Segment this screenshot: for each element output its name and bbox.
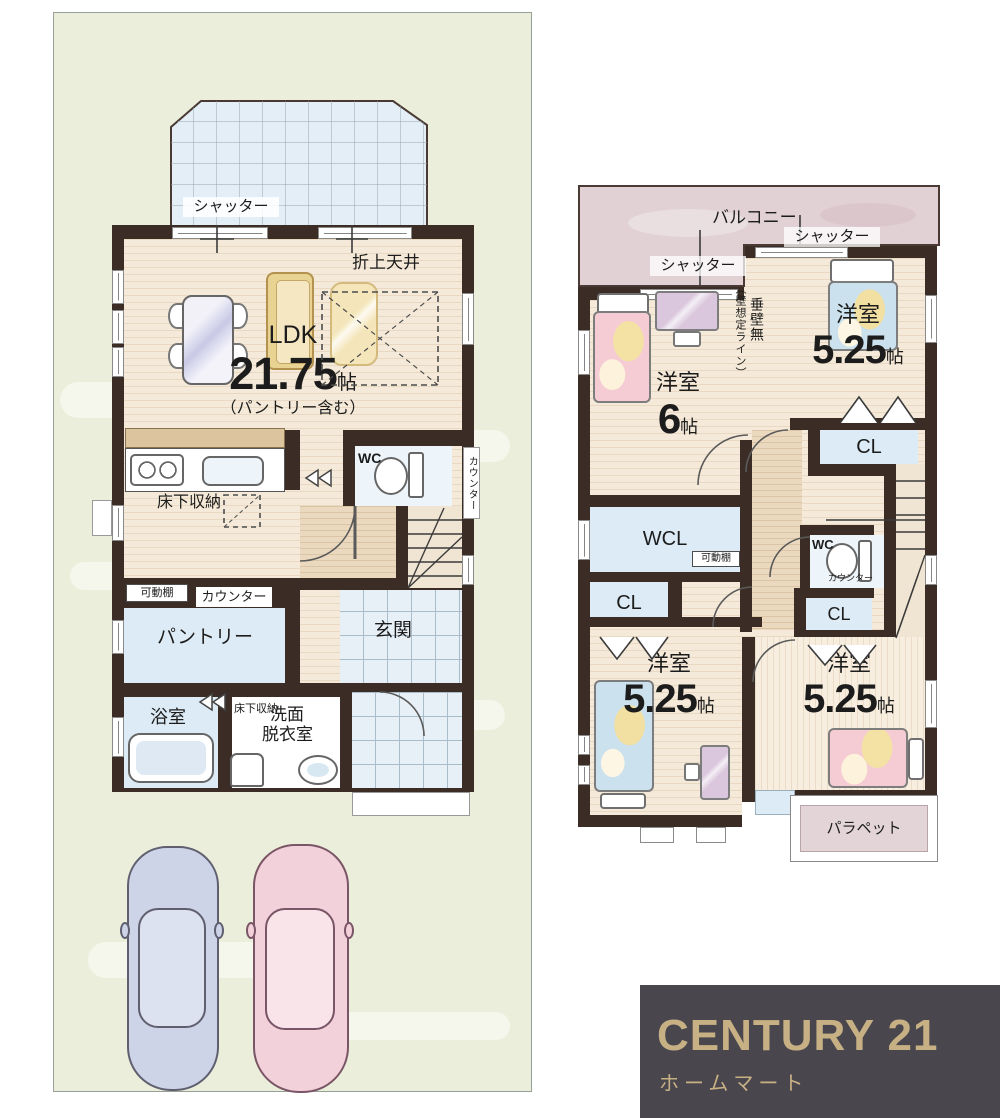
wall-note-paren: （壁想定ライン） bbox=[731, 283, 746, 443]
shutter-window bbox=[172, 227, 268, 239]
window bbox=[925, 680, 937, 728]
room-tr-label: 洋室 5.25 帖 bbox=[793, 300, 923, 376]
room6-label: 洋室 6 帖 bbox=[628, 357, 728, 457]
room-tr-size: 5.25 bbox=[812, 327, 886, 373]
door-tab bbox=[640, 827, 674, 843]
car-2 bbox=[253, 844, 349, 1093]
wall bbox=[285, 430, 300, 490]
car-1-mirror bbox=[120, 922, 130, 939]
coffered-ceiling-label: 折上天井 bbox=[352, 253, 420, 273]
desk-room6 bbox=[655, 291, 719, 331]
window bbox=[112, 310, 124, 344]
window bbox=[462, 555, 474, 585]
counter-label-1f: カウンター bbox=[196, 587, 272, 607]
counter-small-label: カウンター bbox=[828, 573, 873, 583]
underfloor-storage-label: 床下収納 bbox=[157, 493, 193, 513]
window bbox=[578, 520, 590, 560]
balcony-label: バルコニー bbox=[712, 208, 797, 228]
wc-label-2f: WC bbox=[812, 538, 826, 551]
bed-headboard bbox=[908, 738, 924, 780]
wash-basin-bowl bbox=[307, 763, 329, 777]
desk-chair bbox=[673, 331, 701, 347]
closet-mr: CL bbox=[806, 598, 872, 630]
kitchen-counter-top bbox=[125, 428, 285, 448]
ldk-size: 21.75 bbox=[229, 348, 337, 400]
balcony-shape bbox=[579, 186, 939, 286]
wall bbox=[343, 446, 355, 506]
wall bbox=[578, 617, 762, 627]
door-tab bbox=[696, 827, 726, 843]
car-1 bbox=[127, 846, 219, 1091]
wall-note: 垂壁無 bbox=[750, 297, 765, 377]
car-2-mirror bbox=[344, 922, 354, 939]
wall bbox=[884, 464, 896, 654]
ldk-name: LDK bbox=[269, 323, 318, 348]
wall bbox=[794, 588, 806, 630]
wall bbox=[740, 440, 752, 632]
parapet-inner: パラペット bbox=[800, 805, 928, 852]
brand-block: CENTURY 21 ホームマート bbox=[640, 985, 1000, 1118]
room6-size: 6 bbox=[658, 395, 680, 443]
bathtub-water bbox=[136, 741, 206, 775]
floorplan-canvas: シャッター WC 可動棚 カウンター パントリー bbox=[0, 0, 1000, 1118]
room-br-name: 洋室 bbox=[827, 652, 871, 676]
kitchen-sink bbox=[202, 456, 264, 486]
entrance-label: 玄関 bbox=[374, 620, 412, 642]
entrance-step bbox=[352, 792, 470, 816]
room-tr-unit: 帖 bbox=[886, 347, 904, 368]
wall bbox=[800, 535, 810, 588]
shelf-room-bl bbox=[684, 763, 700, 781]
desk-room-bl bbox=[700, 745, 730, 800]
brand-sub: ホームマート bbox=[659, 1073, 808, 1096]
side-door-step bbox=[92, 500, 112, 536]
wall bbox=[343, 430, 462, 446]
hall-1f bbox=[300, 506, 396, 578]
room-tr-name: 洋室 bbox=[836, 303, 880, 327]
window bbox=[462, 293, 474, 345]
side-counter-label-1f: カウンター bbox=[463, 447, 480, 519]
window bbox=[925, 295, 937, 343]
window bbox=[925, 555, 937, 585]
bed-room-br bbox=[828, 728, 908, 788]
porch bbox=[352, 692, 462, 788]
room-bl-size: 5.25 bbox=[623, 676, 697, 722]
car-2-mirror bbox=[246, 922, 256, 939]
lot-texture bbox=[330, 1012, 510, 1040]
ldk-unit: 帖 bbox=[337, 372, 357, 395]
shutter-label-2f-left: シャッター bbox=[650, 256, 746, 276]
shutter-label-2f-right: シャッター bbox=[784, 227, 880, 247]
ldk-note: （パントリー含む） bbox=[221, 400, 366, 418]
room-bl-name: 洋室 bbox=[647, 652, 691, 676]
bathtub bbox=[128, 733, 214, 783]
room-br-label: 洋室 5.25 帖 bbox=[776, 647, 922, 727]
movable-shelf-label-1f: 可動棚 bbox=[126, 584, 188, 602]
bed-footboard bbox=[600, 793, 646, 809]
room-bl-unit: 帖 bbox=[697, 696, 715, 717]
stove bbox=[130, 454, 184, 486]
stairs-2f bbox=[896, 464, 925, 640]
pantry-label: パントリー bbox=[142, 625, 268, 651]
balcony-texture bbox=[820, 203, 916, 227]
window bbox=[578, 765, 590, 785]
wall bbox=[742, 637, 755, 790]
brand-name: CENTURY 21 bbox=[657, 1011, 938, 1062]
balcony bbox=[578, 185, 940, 287]
window bbox=[112, 620, 124, 654]
wall bbox=[800, 588, 874, 598]
washroom-label-2: 脱衣室 bbox=[262, 725, 313, 745]
window bbox=[578, 330, 590, 375]
car-2-cabin bbox=[265, 908, 335, 1030]
room-bl-label: 洋室 5.25 帖 bbox=[606, 647, 732, 727]
movable-shelf-label-2f: 可動棚 bbox=[692, 551, 740, 567]
washroom-label-1: 洗面 bbox=[270, 705, 304, 725]
window bbox=[112, 270, 124, 304]
floor1-plan: WC 可動棚 カウンター パントリー 玄関 浴室 床下収納 洗面 脱衣室 bbox=[112, 225, 474, 792]
wc-label-1f: WC bbox=[358, 451, 373, 465]
car-1-mirror bbox=[214, 922, 224, 939]
window bbox=[578, 735, 590, 755]
car-1-cabin bbox=[138, 908, 206, 1028]
toilet-tank-1f bbox=[408, 452, 424, 498]
ldk-label: LDK 21.75 帖 （パントリー含む） bbox=[208, 323, 378, 419]
shutter-window bbox=[318, 227, 412, 239]
room6-unit: 帖 bbox=[680, 417, 698, 438]
wall bbox=[578, 495, 752, 507]
room6-name: 洋室 bbox=[656, 371, 700, 395]
shutter-label-1f: シャッター bbox=[183, 197, 279, 217]
wall bbox=[800, 525, 874, 535]
stairs-1f bbox=[408, 506, 462, 588]
closet-tr: CL bbox=[820, 430, 918, 464]
room-br-unit: 帖 bbox=[877, 696, 895, 717]
bath-label: 浴室 bbox=[150, 707, 186, 728]
side-door bbox=[112, 505, 124, 541]
wall bbox=[340, 697, 352, 788]
floor2-plan: 洋室 6 帖 （壁想定ライン） 垂壁無 洋室 5.25 帖 CL bbox=[578, 245, 937, 827]
underfloor-storage-small-label: 床下収納 bbox=[234, 703, 260, 716]
room-br-size: 5.25 bbox=[803, 676, 877, 722]
window bbox=[112, 347, 124, 377]
wall bbox=[285, 608, 300, 683]
wall bbox=[578, 572, 740, 582]
washing-machine bbox=[230, 753, 264, 787]
balcony-access bbox=[755, 790, 795, 815]
parapet: パラペット bbox=[790, 795, 938, 862]
window bbox=[112, 717, 124, 757]
wash-basin bbox=[298, 755, 338, 785]
